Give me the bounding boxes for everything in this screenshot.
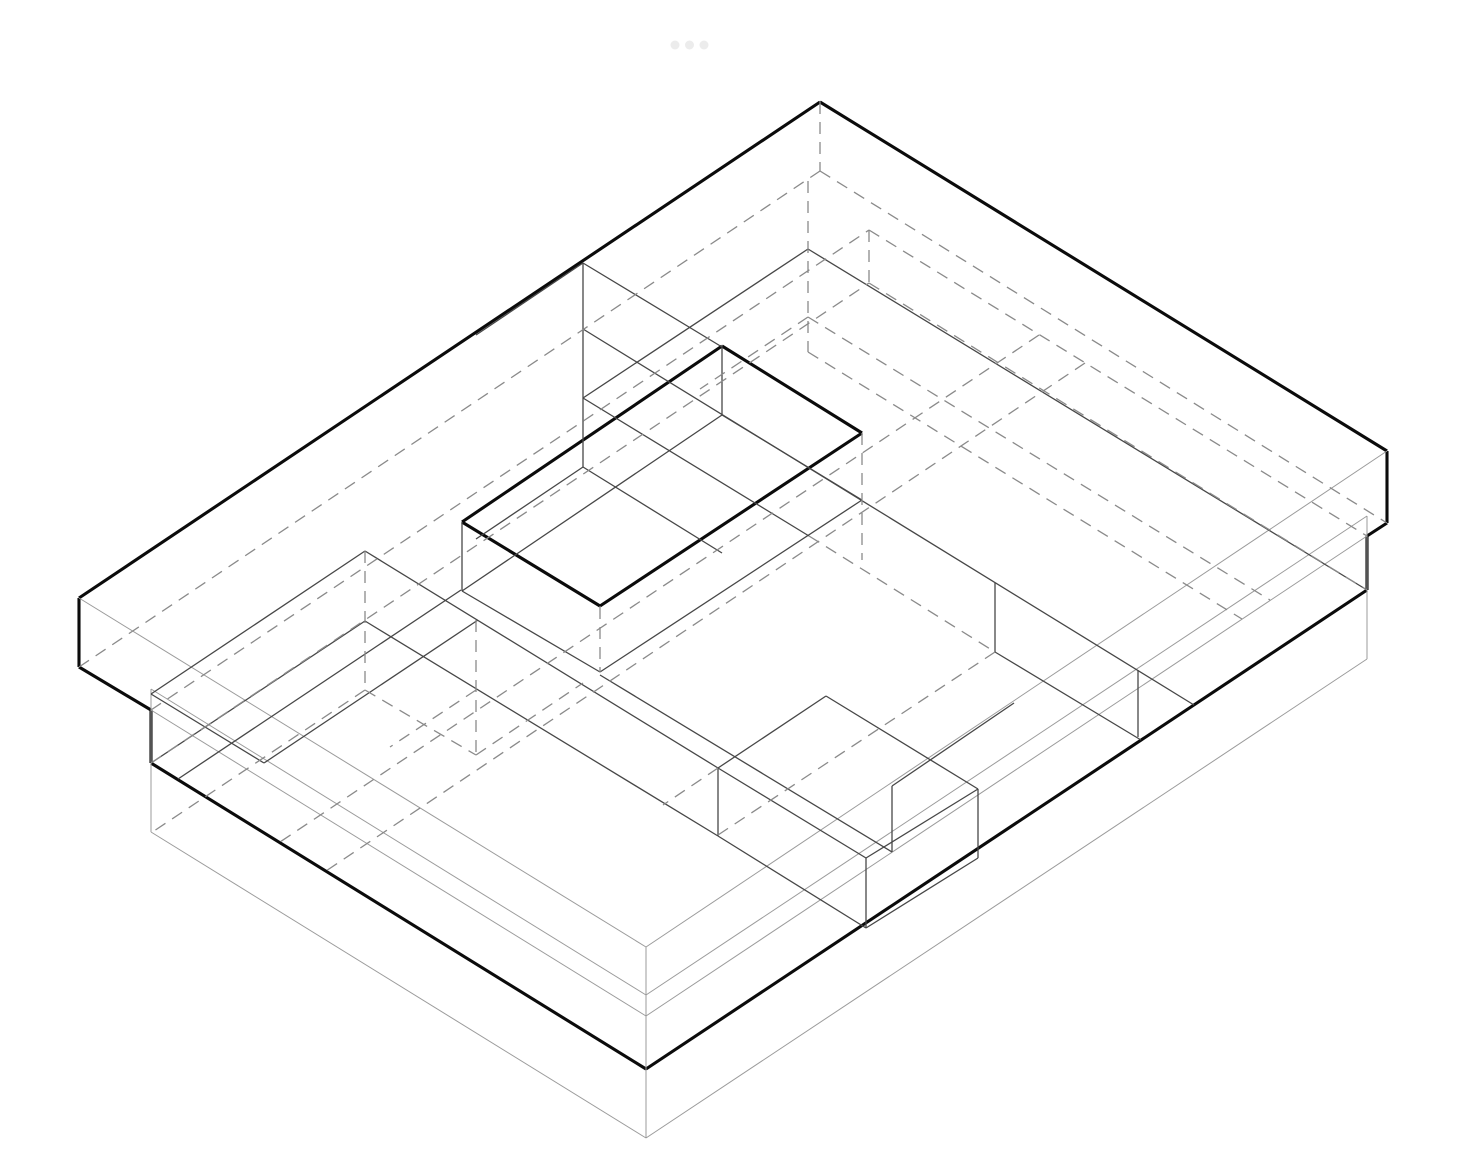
window-dot-3 [700, 41, 709, 50]
slab-visible-edges-light-edge [646, 659, 1367, 1138]
interior-volumes-and-opening-reveal-edges-edge [264, 620, 478, 763]
interior-volumes-and-opening-reveal-edges-edge [866, 789, 978, 858]
hidden-edges-dashed-edge [869, 230, 1367, 536]
interior-volumes-and-opening-reveal-edges-edge [600, 500, 862, 672]
interior-volumes-and-opening-reveal-edges-edge [718, 696, 826, 768]
interior-volumes-and-opening-reveal-edges-edge [995, 652, 1141, 740]
hidden-edges-dashed-edge [700, 317, 808, 389]
slab-visible-edges-light [79, 451, 1387, 1138]
interior-volumes-and-opening-reveal-edges-edge [462, 591, 600, 672]
slab-visible-edges-light-edge [151, 689, 646, 995]
interior-volumes-and-opening-reveal-edges-edge [600, 675, 892, 852]
interior-volumes-and-opening-reveal-edges-edge [718, 768, 866, 858]
silhouette-and-roof-opening-bold-edges-edge [600, 433, 862, 606]
interior-volumes-and-opening-reveal-edges-edge [583, 329, 1194, 705]
hidden-edges-dashed-edge [820, 171, 1387, 523]
interior-volumes-and-opening-reveal-edges-edge [151, 551, 365, 694]
window-control-dots [671, 41, 709, 50]
hidden-edges-dashed-edge [808, 317, 1270, 600]
hidden-edges-dashed-edge [390, 690, 476, 747]
interior-volumes-and-opening-reveal-edges-edge [583, 398, 809, 536]
window-dot-2 [685, 41, 694, 50]
silhouette-and-roof-opening-bold-edges-edge [1367, 523, 1387, 536]
slab-visible-edges-light-edge [646, 451, 1387, 947]
hidden-edges-dashed-edge [326, 363, 1085, 871]
slab-visible-edges-light-edge [151, 832, 646, 1138]
hidden-edges-dashed-edge [79, 171, 820, 667]
interior-volumes-and-opening-reveal-edges-edge [583, 263, 722, 347]
interior-volumes-and-opening-reveal-edges-edge [583, 249, 808, 398]
hidden-edges-dashed-edge [365, 690, 476, 755]
interior-volumes-and-opening-reveal-edges [151, 249, 1367, 928]
slab-visible-edges-light-edge [646, 516, 1367, 995]
hidden-edges-dashed-edge [663, 768, 718, 805]
interior-volumes-and-opening-reveal-edges-edge [476, 263, 583, 335]
slab-visible-edges-light-edge [646, 536, 1367, 1016]
hidden-edges-dashed-edge [151, 283, 869, 763]
interior-volumes-and-opening-reveal-edges-edge [462, 415, 722, 591]
axonometric-diagram-page [0, 0, 1470, 1154]
hidden-edges-dashed-edge [808, 352, 1242, 619]
silhouette-and-roof-opening-bold-edges [79, 102, 1387, 1069]
silhouette-and-roof-opening-bold-edges-edge [79, 102, 820, 598]
hidden-edges-dashed-edge [809, 536, 995, 652]
silhouette-and-roof-opening-bold-edges-edge [462, 346, 722, 522]
interior-volumes-and-opening-reveal-edges-edge [583, 467, 722, 553]
silhouette-and-roof-opening-bold-edges-edge [646, 590, 1367, 1069]
hidden-edges-dashed-edge [151, 230, 869, 710]
interior-volumes-and-opening-reveal-edges-edge [151, 694, 264, 763]
silhouette-and-roof-opening-bold-edges-edge [820, 102, 1387, 451]
window-dot-1 [671, 41, 680, 50]
silhouette-and-roof-opening-bold-edges-edge [151, 763, 646, 1069]
slab-visible-edges-light-edge [151, 710, 646, 1016]
silhouette-and-roof-opening-bold-edges-edge [79, 667, 151, 710]
axonometric-drawing [0, 0, 1470, 1154]
hidden-edges-dashed-edge [151, 690, 365, 833]
silhouette-and-roof-opening-bold-edges-edge [722, 346, 862, 433]
interior-volumes-and-opening-reveal-edges-edge [866, 858, 978, 928]
hidden-edges-dashed-edge [280, 335, 1039, 842]
